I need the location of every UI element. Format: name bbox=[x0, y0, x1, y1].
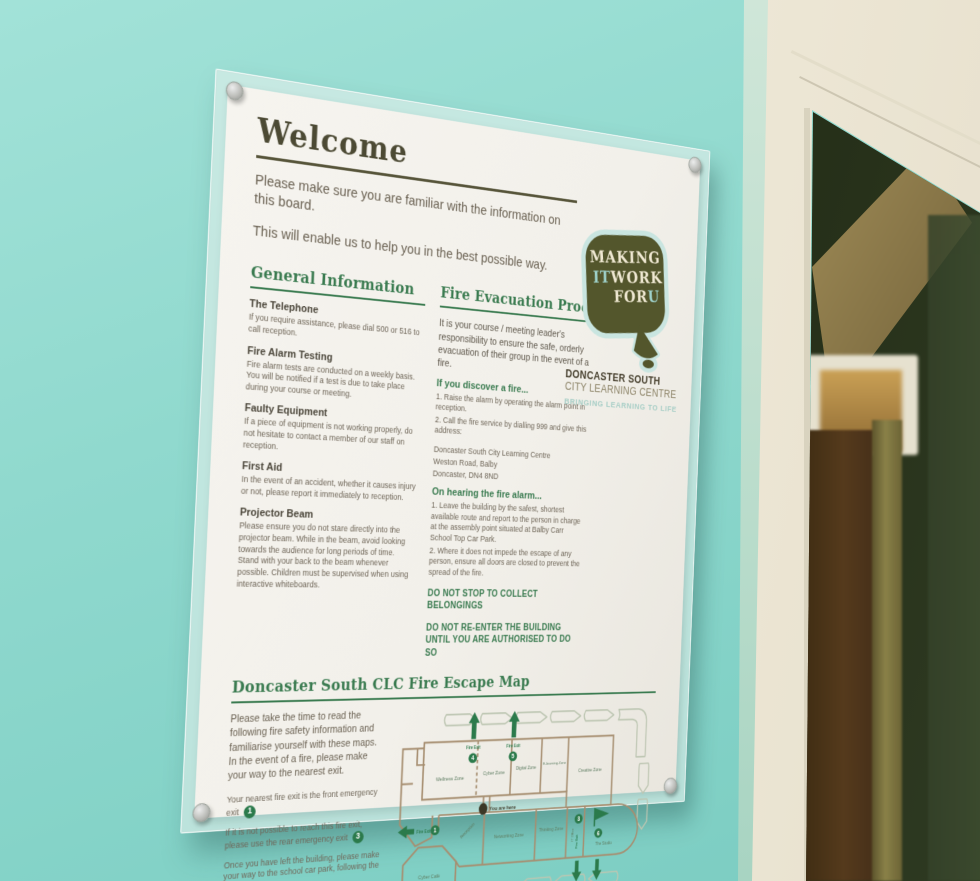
zone-the-studio: The Studio bbox=[595, 840, 612, 846]
printed-sheet: Welcome Please make sure you are familia… bbox=[194, 84, 700, 818]
exit-3-badge: 3 bbox=[352, 830, 364, 843]
warning-belongings: DO NOT STOP TO COLLECT BELONGINGS bbox=[427, 587, 582, 613]
logo-word-making: MAKING bbox=[589, 248, 660, 268]
zone-wellness: Wellness Zone bbox=[436, 776, 464, 783]
logo-speech-bubble: MAKING ITWORK FORU bbox=[570, 216, 684, 376]
logo-text: MAKING ITWORK FORU bbox=[589, 248, 665, 308]
photo-scene: Welcome Please make sure you are familia… bbox=[0, 0, 980, 881]
interior-pillar bbox=[872, 420, 902, 881]
fire-exit-6-arrow-icon bbox=[592, 859, 602, 881]
logo-block: MAKING ITWORK FORU DONCASTER SOUTH CITY … bbox=[564, 215, 688, 415]
zone-digital: Digital Zone bbox=[516, 765, 537, 772]
fire-exit-4-arrow-icon bbox=[468, 712, 480, 739]
address-line: Weston Road, Balby bbox=[433, 456, 497, 469]
rear-exit-text: If it is not possible to reach this fire… bbox=[225, 819, 363, 850]
fire-exit-3-arrow-icon bbox=[571, 860, 581, 881]
general-information-column: General Information The Telephone If you… bbox=[233, 263, 426, 662]
car-park-note: Once you have left the building, please … bbox=[222, 849, 380, 881]
zone-cyber-cafe: Cyber Café bbox=[418, 873, 440, 881]
fire-exit-label: Fire Exit bbox=[466, 745, 481, 750]
fire-exit-1-arrow-icon bbox=[398, 825, 415, 839]
zone-it-office: IT Office bbox=[571, 828, 575, 841]
notice-board: Welcome Please make sure you are familia… bbox=[180, 68, 710, 833]
zone-networking: Networking Zone bbox=[494, 833, 524, 841]
floor-plan-map: Wellness Zone Cyber Zone Digital Zone E-… bbox=[386, 702, 656, 881]
alarm-step: 2. Where it does not impede the escape o… bbox=[428, 545, 583, 580]
general-information-heading: General Information bbox=[250, 263, 426, 300]
logo-word-work: WORK bbox=[611, 268, 663, 287]
zone-elearning: E-learning Zone bbox=[543, 760, 567, 766]
fire-exit-label: Fire Exit bbox=[575, 834, 579, 849]
interior-far-wall bbox=[928, 215, 980, 881]
zone-cyber: Cyber Zone bbox=[483, 770, 505, 777]
building-walls bbox=[396, 734, 641, 881]
fire-exit-5-arrow-icon bbox=[508, 711, 520, 738]
warning-reenter: DO NOT RE-ENTER THE BUILDING UNTIL YOU A… bbox=[425, 622, 581, 660]
map-intro: Please take the time to read the followi… bbox=[228, 709, 387, 785]
item-body: Please ensure you do not stare directly … bbox=[236, 521, 415, 592]
address-line: Doncaster, DN4 8ND bbox=[433, 468, 499, 480]
zone-creative: Creative Zone bbox=[578, 767, 602, 774]
nearest-exit-note: Your nearest fire exit is the front emer… bbox=[226, 787, 383, 820]
info-item: The Telephone If you require assistance,… bbox=[248, 298, 425, 350]
info-item: Fire Alarm Testing Fire alarm tests are … bbox=[245, 345, 422, 405]
map-instructions: Please take the time to read the followi… bbox=[221, 709, 386, 881]
alarm-step: 1. Leave the building by the safest, sho… bbox=[430, 500, 586, 547]
logo-word-it: IT bbox=[593, 268, 611, 287]
fire-exit-label: Fire Exit bbox=[416, 828, 431, 834]
info-item: Faulty Equipment If a piece of equipment… bbox=[243, 402, 421, 459]
you-are-here-marker: You are here bbox=[479, 801, 516, 815]
info-item: Projector Beam Please ensure you do not … bbox=[236, 507, 416, 591]
info-item: First Aid In the event of an accident, w… bbox=[241, 460, 419, 503]
zone-reception: Reception bbox=[459, 821, 476, 840]
fire-exit-6-flag-icon bbox=[594, 808, 607, 826]
zone-thinking: Thinking Zone bbox=[539, 827, 564, 834]
rear-exit-note: If it is not possible to reach this fire… bbox=[224, 818, 381, 852]
fire-escape-map-section: Doncaster South CLC Fire Escape Map Plea… bbox=[221, 671, 657, 881]
fire-exit-label: Fire Exit bbox=[506, 743, 520, 748]
logo-word-for: FOR bbox=[613, 288, 648, 306]
logo-word-u: U bbox=[648, 288, 661, 306]
exit-1-badge: 1 bbox=[244, 805, 256, 819]
address-block: Doncaster South City Learning Centre Wes… bbox=[432, 444, 587, 487]
